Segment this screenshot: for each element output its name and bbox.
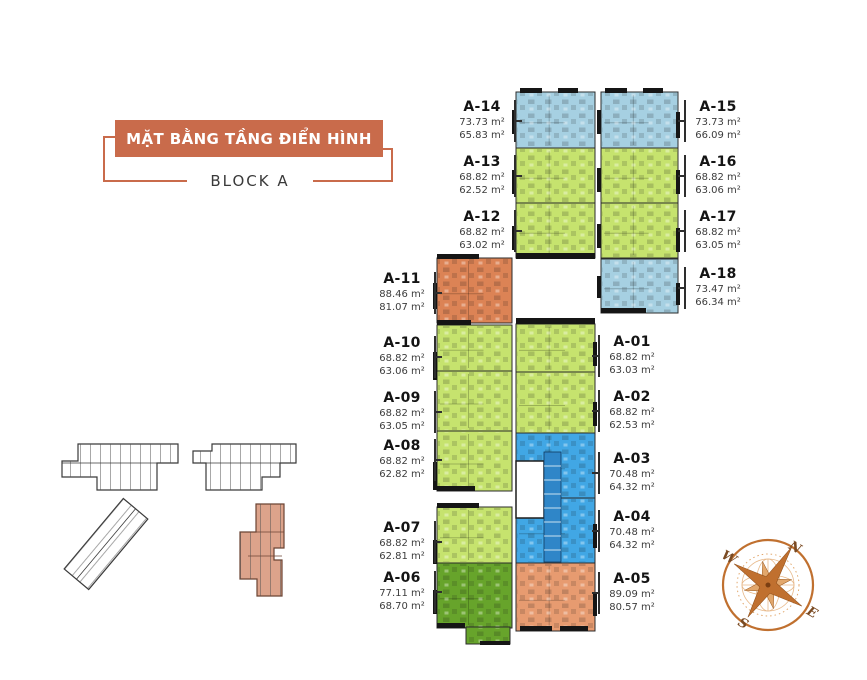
unit-id: A-09	[374, 391, 430, 406]
unit-area-gross: 68.82 m²	[454, 172, 510, 185]
unit-area-net: 81.07 m²	[374, 302, 430, 315]
unit-id: A-13	[454, 155, 510, 170]
unit-id: A-02	[604, 390, 660, 405]
unit-shape-a-06	[437, 563, 512, 628]
unit-area-net: 66.09 m²	[690, 130, 746, 143]
unit-id: A-01	[604, 335, 660, 350]
unit-label-a-18: A-18 73.47 m² 66.34 m²	[690, 267, 746, 309]
unit-label-a-11: A-11 88.46 m² 81.07 m²	[374, 272, 430, 314]
unit-area-gross: 89.09 m²	[604, 589, 660, 602]
unit-label-a-10: A-10 68.82 m² 63.06 m²	[374, 336, 430, 378]
keyplan-building-1	[62, 444, 178, 490]
unit-shape-a-02	[516, 372, 595, 433]
compass-rose: N E S W	[714, 526, 826, 639]
unit-id: A-12	[454, 210, 510, 225]
unit-label-a-16: A-16 68.82 m² 63.06 m²	[690, 155, 746, 197]
unit-id: A-18	[690, 267, 746, 282]
unit-shape-a-05	[516, 563, 595, 631]
unit-id: A-08	[374, 439, 430, 454]
unit-area-net: 63.05 m²	[690, 240, 746, 253]
unit-area-gross: 73.47 m²	[690, 284, 746, 297]
unit-a-06-extension-texture	[467, 628, 509, 643]
unit-id: A-17	[690, 210, 746, 225]
unit-area-gross: 77.11 m²	[374, 588, 430, 601]
unit-label-a-02: A-02 68.82 m² 62.53 m²	[604, 390, 660, 432]
unit-label-a-08: A-08 68.82 m² 62.82 m²	[374, 439, 430, 481]
unit-area-gross: 70.48 m²	[604, 527, 660, 540]
unit-label-a-05: A-05 89.09 m² 80.57 m²	[604, 572, 660, 614]
unit-label-a-03: A-03 70.48 m² 64.32 m²	[604, 452, 660, 494]
page-title: MẶT BẰNG TẦNG ĐIỂN HÌNH	[115, 120, 383, 157]
unit-area-gross: 68.82 m²	[604, 407, 660, 420]
unit-shape-a-10	[437, 325, 512, 371]
title-bracket-left-vertical	[103, 136, 105, 182]
unit-shape-a-11	[437, 258, 512, 323]
unit-area-net: 62.82 m²	[374, 469, 430, 482]
unit-id: A-05	[604, 572, 660, 587]
unit-area-net: 62.81 m²	[374, 551, 430, 564]
unit-area-gross: 73.73 m²	[454, 117, 510, 130]
unit-area-gross: 68.82 m²	[374, 408, 430, 421]
unit-shape-a-08	[437, 431, 512, 491]
unit-label-a-04: A-04 70.48 m² 64.32 m²	[604, 510, 660, 552]
unit-id: A-03	[604, 452, 660, 467]
title-bracket-right-top	[383, 148, 393, 150]
unit-area-net: 63.05 m²	[374, 421, 430, 434]
unit-area-net: 63.03 m²	[604, 365, 660, 378]
unit-id: A-10	[374, 336, 430, 351]
unit-id: A-11	[374, 272, 430, 287]
unit-label-a-14: A-14 73.73 m² 65.83 m²	[454, 100, 510, 142]
unit-label-a-01: A-01 68.82 m² 63.03 m²	[604, 335, 660, 377]
unit-area-gross: 68.82 m²	[604, 352, 660, 365]
unit-label-a-17: A-17 68.82 m² 63.05 m²	[690, 210, 746, 252]
unit-area-gross: 68.82 m²	[690, 172, 746, 185]
keyplan	[62, 444, 296, 596]
unit-area-net: 65.83 m²	[454, 130, 510, 143]
unit-label-a-15: A-15 73.73 m² 66.09 m²	[690, 100, 746, 142]
unit-area-gross: 70.48 m²	[604, 469, 660, 482]
unit-label-a-12: A-12 68.82 m² 63.02 m²	[454, 210, 510, 252]
unit-area-net: 64.32 m²	[604, 540, 660, 553]
unit-area-gross: 68.82 m²	[454, 227, 510, 240]
title-bracket-left-top	[103, 136, 115, 138]
unit-shape-a-07	[437, 507, 512, 563]
unit-label-a-07: A-07 68.82 m² 62.81 m²	[374, 521, 430, 563]
unit-area-gross: 68.82 m²	[374, 456, 430, 469]
unit-shape-a-15	[601, 92, 678, 148]
unit-shape-a-09	[437, 371, 512, 431]
floor-plan-page: N E S W MẶT BẰNG TẦNG ĐIỂN HÌNH BLOCK A …	[0, 0, 867, 680]
unit-label-a-06: A-06 77.11 m² 68.70 m²	[374, 571, 430, 613]
compass-star	[714, 526, 826, 639]
unit-shape-a-12	[516, 203, 595, 258]
unit-shape-a-14	[516, 92, 595, 148]
unit-area-net: 62.52 m²	[454, 185, 510, 198]
unit-area-net: 80.57 m²	[604, 602, 660, 615]
unit-area-net: 63.06 m²	[374, 366, 430, 379]
unit-shape-a-13	[516, 148, 595, 203]
keyplan-building-2	[193, 444, 296, 490]
unit-id: A-15	[690, 100, 746, 115]
unit-shape-a-01	[516, 324, 595, 372]
unit-shape-a-16	[601, 148, 678, 203]
unit-area-net: 66.34 m²	[690, 297, 746, 310]
unit-area-gross: 68.82 m²	[374, 538, 430, 551]
unit-shape-a-17	[601, 203, 678, 258]
unit-area-net: 63.06 m²	[690, 185, 746, 198]
title-bracket-right-vertical	[391, 148, 393, 182]
unit-area-net: 63.02 m²	[454, 240, 510, 253]
unit-area-gross: 68.82 m²	[374, 353, 430, 366]
unit-label-a-13: A-13 68.82 m² 62.52 m²	[454, 155, 510, 197]
compass-e-label: E	[803, 603, 821, 622]
unit-area-net: 62.53 m²	[604, 420, 660, 433]
unit-area-gross: 73.73 m²	[690, 117, 746, 130]
unit-id: A-07	[374, 521, 430, 536]
unit-id: A-14	[454, 100, 510, 115]
block-subtitle: BLOCK A	[116, 172, 384, 190]
keyplan-building-3	[64, 498, 148, 589]
unit-area-net: 64.32 m²	[604, 482, 660, 495]
unit-id: A-04	[604, 510, 660, 525]
unit-id: A-16	[690, 155, 746, 170]
unit-id: A-06	[374, 571, 430, 586]
unit-shape-a-18	[601, 259, 678, 313]
keyplan-building-highlighted	[240, 504, 284, 596]
unit-area-net: 68.70 m²	[374, 601, 430, 614]
unit-area-gross: 88.46 m²	[374, 289, 430, 302]
unit-label-a-09: A-09 68.82 m² 63.05 m²	[374, 391, 430, 433]
unit-area-gross: 68.82 m²	[690, 227, 746, 240]
